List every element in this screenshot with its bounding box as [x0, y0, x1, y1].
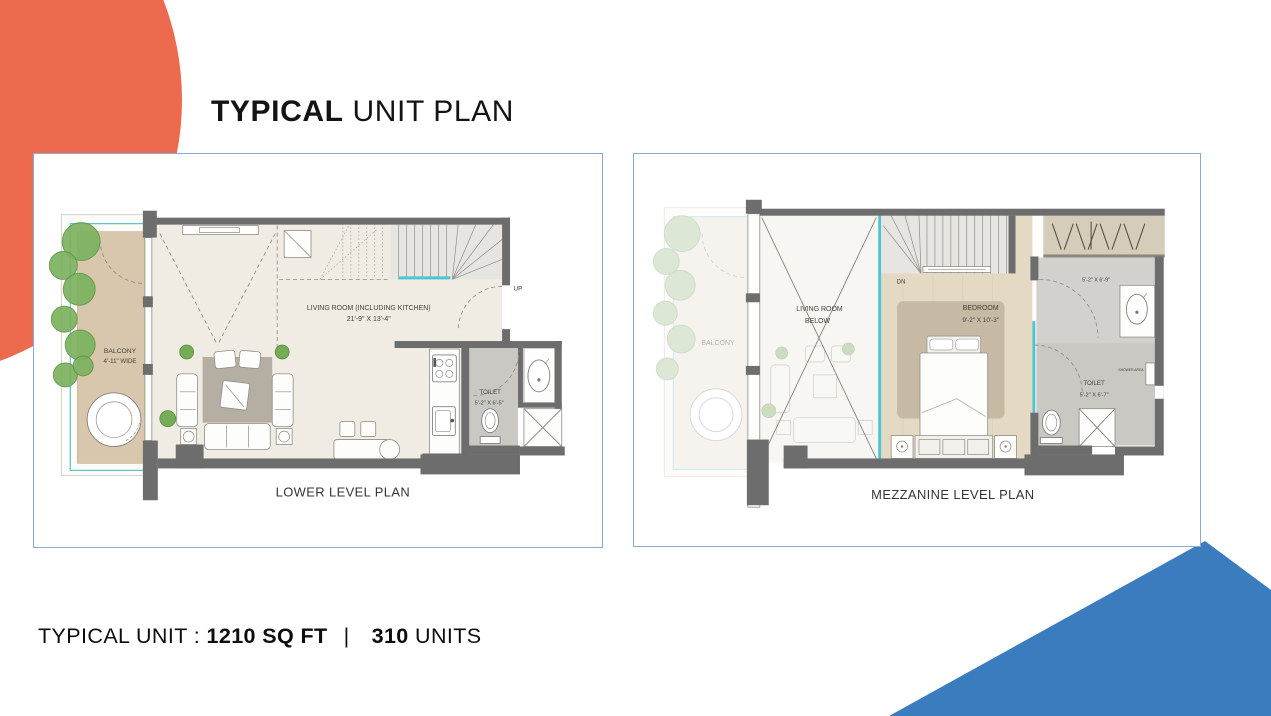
mezzanine-plan-caption: MEZZANINE LEVEL PLAN: [871, 487, 1034, 502]
kitchen-counter: [429, 349, 459, 460]
svg-text:21'-9" X 13'-4": 21'-9" X 13'-4": [347, 316, 391, 323]
balcony-round-seat: [87, 393, 141, 447]
footer-units: UNITS: [409, 624, 482, 648]
svg-text:DN: DN: [897, 279, 906, 285]
toilet-wc: [1040, 410, 1062, 443]
svg-text:TOILET: TOILET: [1083, 380, 1105, 387]
toilet-wc: [480, 409, 500, 444]
svg-text:TOILET: TOILET: [479, 389, 501, 396]
lower-level-plan-frame: BALCONY 4'-11" WIDE: [33, 153, 603, 548]
tv-console: [183, 226, 259, 235]
svg-text:BALCONY: BALCONY: [104, 348, 137, 355]
svg-text:4'-11" WIDE: 4'-11" WIDE: [103, 358, 136, 365]
duct-box: [284, 231, 311, 258]
svg-text:9'-2" X 10'-3": 9'-2" X 10'-3": [962, 317, 999, 324]
footer-separator: |: [344, 624, 350, 648]
blue-corner-blob: [889, 541, 1271, 716]
page-title-emphasis: TYPICAL: [211, 95, 344, 128]
mezzanine-level-plan-drawing: BALCONY DN: [634, 154, 1200, 546]
slide: { "slide": { "title": { "emphasis": "TYP…: [0, 0, 1271, 716]
svg-text:BEDROOM: BEDROOM: [963, 305, 999, 312]
shower-box: [524, 409, 562, 447]
lower-level-plan-drawing: BALCONY 4'-11" WIDE: [34, 154, 602, 547]
footer-label: TYPICAL UNIT :: [38, 624, 206, 648]
glass-divider: [878, 216, 881, 463]
staircase-down: [881, 216, 1015, 274]
page-title: TYPICAL UNIT PLAN: [211, 95, 514, 129]
page-title-rest: UNIT PLAN: [344, 95, 515, 128]
svg-text:5'-2" X 6'-5": 5'-2" X 6'-5": [475, 401, 504, 407]
washbasin: [524, 348, 555, 403]
svg-text:SHOWER AREA: SHOWER AREA: [1118, 368, 1144, 372]
svg-text:5'-2" X 6'-9": 5'-2" X 6'-9": [1082, 277, 1110, 283]
footer-area: 1210 SQ FT: [206, 624, 327, 648]
wardrobe: [1043, 216, 1164, 258]
mezzanine-level-plan-frame: BALCONY DN: [633, 153, 1201, 547]
svg-text:LIVING ROOM (INCLUDING KITCHEN: LIVING ROOM (INCLUDING KITCHEN): [307, 305, 431, 312]
footer-summary: TYPICAL UNIT : 1210 SQ FT|310 UNITS: [38, 624, 482, 649]
svg-text:5'-2" X 6'-7": 5'-2" X 6'-7": [1080, 393, 1109, 399]
lower-plan-caption: LOWER LEVEL PLAN: [276, 484, 410, 499]
svg-text:BALCONY: BALCONY: [701, 340, 735, 347]
svg-text:BELOW: BELOW: [805, 318, 831, 325]
svg-text:LIVING ROOM: LIVING ROOM: [796, 306, 843, 313]
balcony-area: BALCONY 4'-11" WIDE: [49, 215, 150, 476]
footer-count: 310: [372, 624, 409, 648]
washbasin: [1120, 285, 1155, 337]
svg-text:UP: UP: [513, 285, 522, 292]
